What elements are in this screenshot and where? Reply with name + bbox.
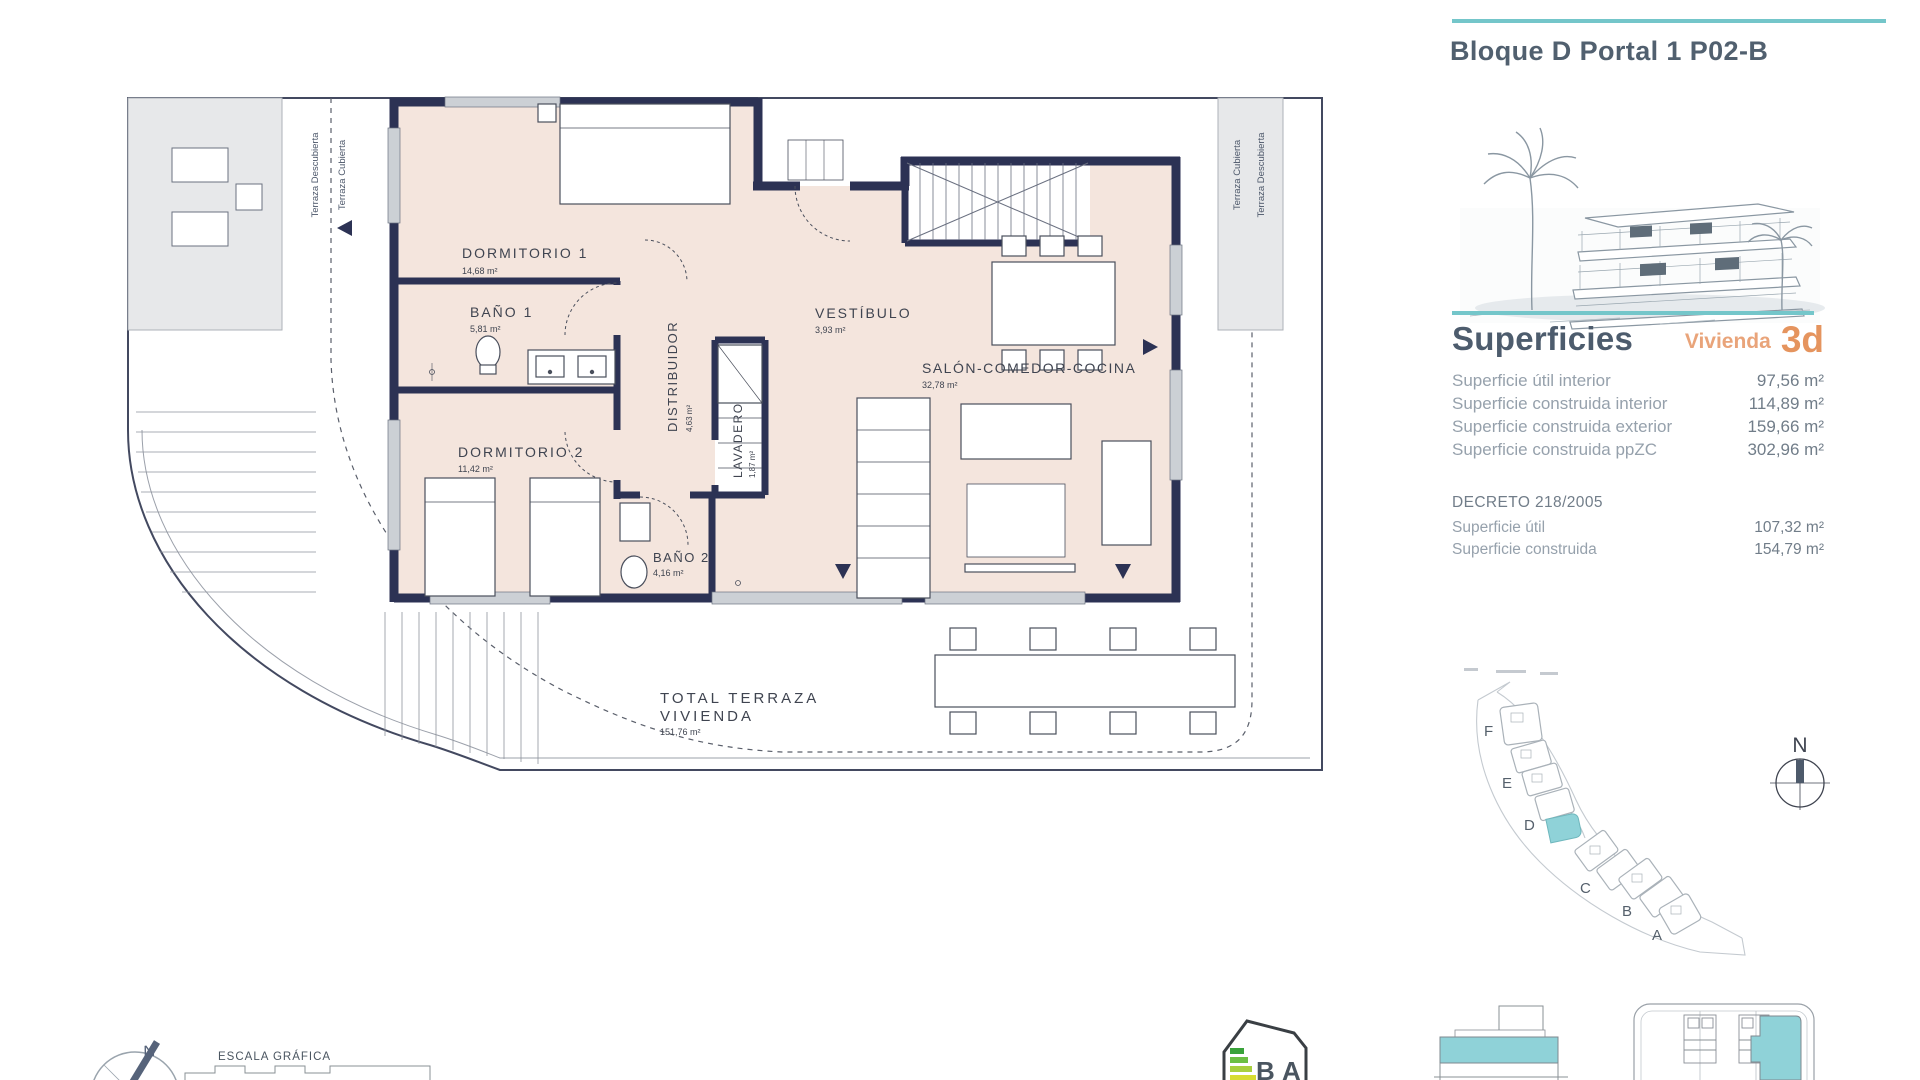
- superficies-table: Superficie útil interior 97,56 m² Superf…: [1452, 369, 1824, 461]
- room-area-vestibulo: 3,93 m²: [815, 325, 846, 335]
- rug: [967, 484, 1065, 557]
- superficie-label: Superficie útil interior: [1452, 369, 1611, 392]
- superficie-value: 107,32 m²: [1754, 517, 1824, 539]
- room-label-salon: SALÓN-COMEDOR-COCINA: [922, 360, 1136, 376]
- siteplan-compass: N: [1770, 734, 1830, 810]
- label-terraza-cubierta-left: Terraza Cubierta: [337, 139, 348, 210]
- toilet-bano2: [621, 556, 647, 588]
- superficie-label: Superficie útil: [1452, 517, 1545, 539]
- decreto-row: Superficie construida 154,79 m²: [1452, 539, 1824, 561]
- superficie-value: 154,79 m²: [1754, 539, 1824, 561]
- superficie-label: Superficie construida interior: [1452, 392, 1667, 415]
- superficie-value: 159,66 m²: [1747, 415, 1824, 438]
- room-area-lavadero: 1,87 m²: [748, 451, 757, 478]
- decreto-heading: DECRETO 218/2005: [1452, 492, 1824, 514]
- superficie-label: Superficie construida exterior: [1452, 415, 1672, 438]
- room-label-bano2: BAÑO 2: [653, 550, 710, 565]
- site-plan: F E D C B A N: [1464, 668, 1830, 955]
- room-area-bano1: 5,81 m²: [470, 324, 501, 334]
- room-label-dormitorio1: DORMITORIO 1: [462, 245, 588, 261]
- room-label-lavadero: LAVADERO: [731, 402, 745, 478]
- sofa-main: [961, 404, 1071, 459]
- decreto-row: Superficie útil 107,32 m²: [1452, 517, 1824, 539]
- room-label-distribuidor: DISTRIBUIDOR: [665, 321, 680, 432]
- room-label-vestibulo: VESTÍBULO: [815, 305, 912, 321]
- room-area-dormitorio1: 14,68 m²: [462, 266, 498, 276]
- superficies-header: Superficies Vivienda 3d: [1452, 320, 1824, 358]
- terrace-total-line2: VIVIENDA: [660, 708, 754, 725]
- page-title: Bloque D Portal 1 P02-B: [1450, 36, 1910, 67]
- superficie-label: Superficie construida ppZC: [1452, 438, 1657, 461]
- vivienda-label: Vivienda: [1685, 330, 1771, 358]
- bed1-dormitorio2: [425, 478, 495, 596]
- energy-letter-b: B: [1256, 1056, 1275, 1080]
- siteplan-compass-n: N: [1792, 734, 1807, 757]
- room-label-dormitorio2: DORMITORIO 2: [458, 444, 584, 460]
- building-illustration: [1460, 128, 1825, 329]
- terrace-total-area: 151,76 m²: [660, 727, 701, 737]
- superficie-value: 302,96 m²: [1747, 438, 1824, 461]
- bed-dormitorio1: [560, 104, 730, 204]
- dining-table: [992, 262, 1115, 345]
- site-letter-a: A: [1652, 927, 1662, 944]
- site-letter-d: D: [1524, 817, 1535, 834]
- superficies-heading: Superficies: [1452, 320, 1633, 358]
- superficie-label: Superficie construida: [1452, 539, 1597, 561]
- terrace-table: [935, 655, 1235, 707]
- superficies-row: Superficie construida exterior 159,66 m²: [1452, 415, 1824, 438]
- room-area-salon: 32,78 m²: [922, 380, 958, 390]
- energy-letter-a: A: [1282, 1056, 1301, 1080]
- elevation-highlighted-floor: [1440, 1037, 1558, 1063]
- site-letter-f: F: [1484, 723, 1493, 740]
- bed2-dormitorio2: [530, 478, 600, 596]
- staircase: [907, 163, 1088, 241]
- kitchen-cabinets: [857, 398, 930, 598]
- superficie-value: 114,89 m²: [1749, 392, 1824, 415]
- room-area-dormitorio2: 11,42 m²: [458, 464, 493, 474]
- compass-needle: [1796, 760, 1804, 783]
- toilet-bano1: [476, 336, 500, 368]
- superficies-row: Superficie construida ppZC 302,96 m²: [1452, 438, 1824, 461]
- elevation-key-diagram: [1434, 1006, 1568, 1080]
- superficies-accent-rule: [1452, 311, 1814, 315]
- tv-bench: [965, 564, 1075, 572]
- site-letter-e: E: [1502, 775, 1512, 792]
- sofa-side: [1102, 441, 1151, 545]
- floor-plan: DORMITORIO 1 14,68 m² BAÑO 1 5,81 m² DOR…: [128, 97, 1322, 770]
- title-accent-rule: [1452, 19, 1886, 23]
- terrace-right-covered: [1218, 98, 1283, 330]
- superficie-value: 97,56 m²: [1757, 369, 1824, 392]
- vivienda-code: 3d: [1781, 321, 1824, 358]
- room-area-bano2: 4,16 m²: [653, 568, 684, 578]
- room-label-bano1: BAÑO 1: [470, 304, 533, 320]
- site-letter-c: C: [1580, 880, 1591, 897]
- room-area-distribuidor: 4,63 m²: [685, 405, 694, 432]
- site-letter-b: B: [1622, 903, 1632, 920]
- energy-label: B A: [1224, 1021, 1306, 1080]
- label-terraza-descubierta-left: Terraza Descubierta: [310, 132, 321, 218]
- label-terraza-descubierta-right: Terraza Descubierta: [1256, 132, 1267, 218]
- terrace-total-line1: TOTAL TERRAZA: [660, 690, 819, 707]
- plan-sheet: { "header": { "title": "Bloque D Portal …: [0, 0, 1920, 1080]
- scale-bar: [185, 1066, 430, 1080]
- label-terraza-cubierta-right: Terraza Cubierta: [1232, 139, 1243, 210]
- shower-bano2: [620, 503, 650, 541]
- sheet-compass: N: [91, 1040, 179, 1080]
- siteplan-cropped-label: [1464, 668, 1558, 675]
- pergola-louvers: [385, 612, 538, 764]
- superficies-row: Superficie construida interior 114,89 m²: [1452, 392, 1824, 415]
- floor-key-diagram: [1634, 1004, 1814, 1080]
- vivienda-tag: Vivienda 3d: [1685, 321, 1824, 358]
- superficies-row: Superficie útil interior 97,56 m²: [1452, 369, 1824, 392]
- arrow-left-icon: [337, 220, 352, 236]
- decreto-block: DECRETO 218/2005 Superficie útil 107,32 …: [1452, 492, 1824, 561]
- scale-label: ESCALA GRÁFICA: [218, 1050, 331, 1063]
- graphic-scale: ESCALA GRÁFICA: [185, 1050, 430, 1080]
- left-slats: [136, 412, 316, 592]
